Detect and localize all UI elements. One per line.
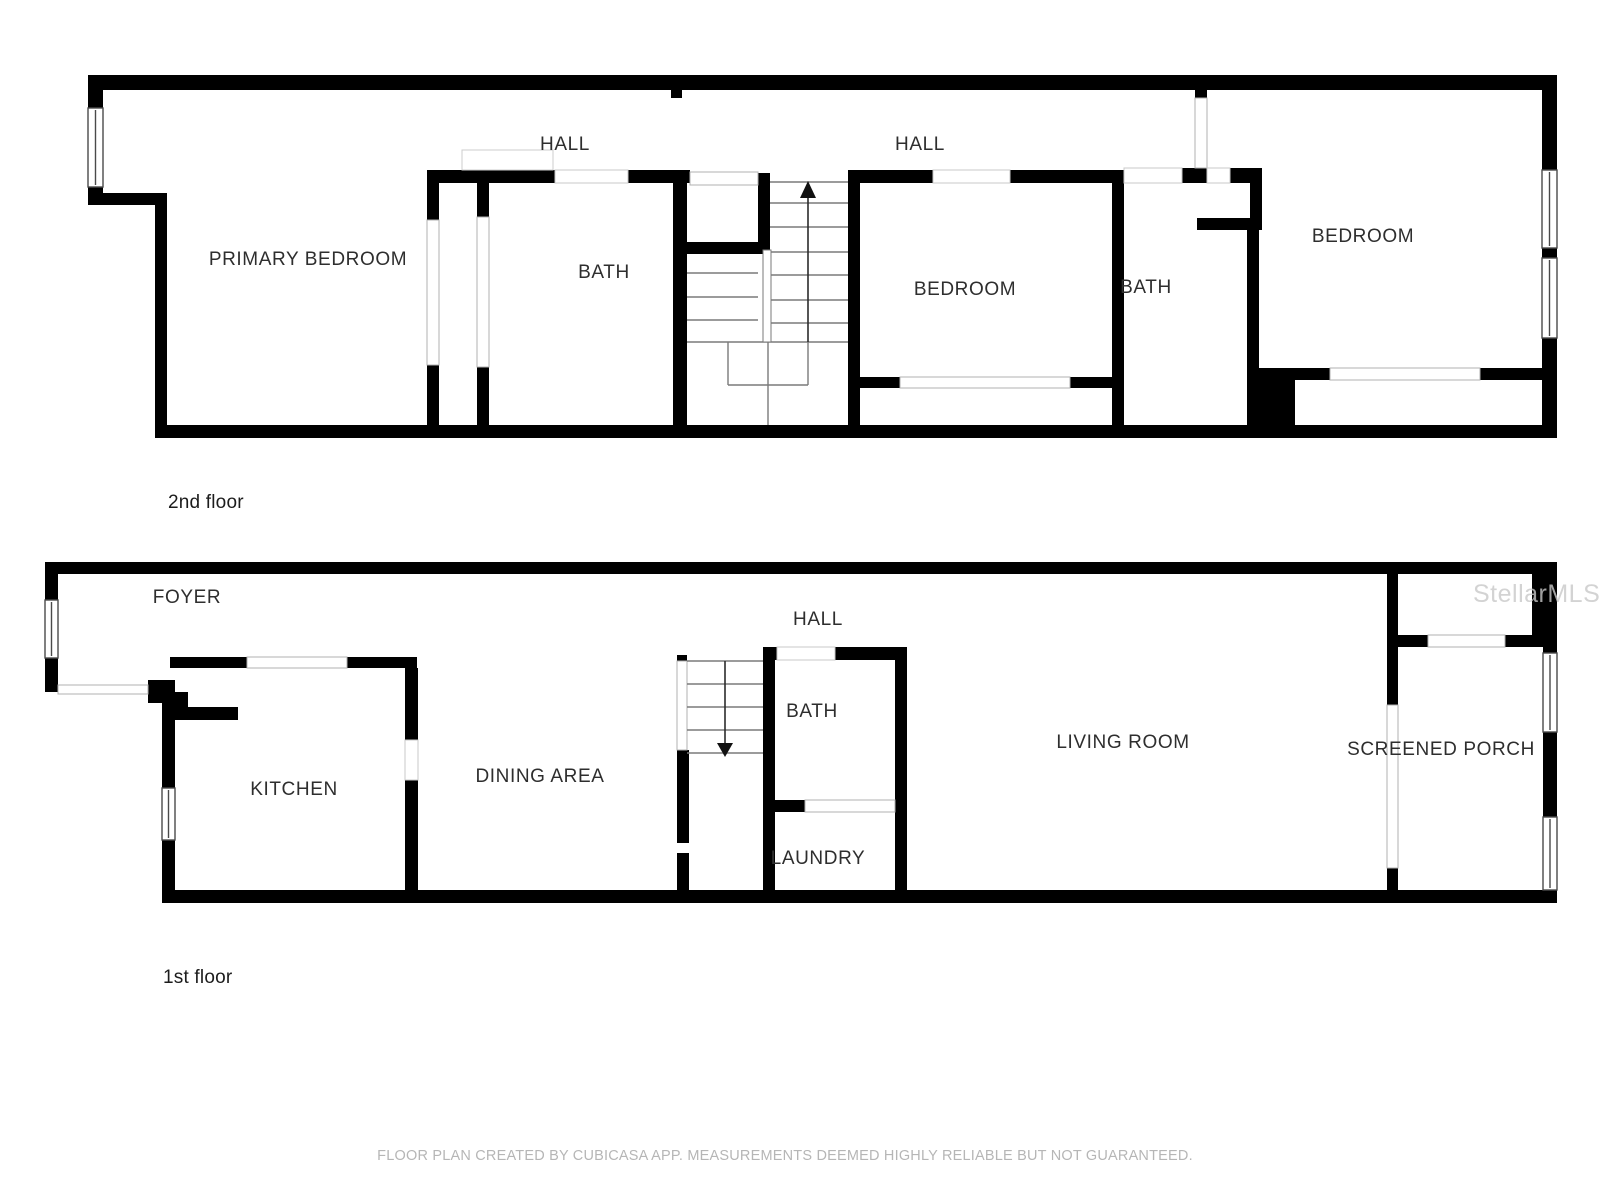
first-floor-openings [58, 635, 1505, 868]
first-floor-windows [45, 600, 1557, 890]
room-label-hall-2f-right: HALL [895, 134, 945, 156]
room-label-dining-area: DINING AREA [475, 766, 604, 788]
room-label-bath-2f-right: BATH [1120, 277, 1172, 299]
room-label-bath-2f-left: BATH [578, 262, 630, 284]
stellar-mls-watermark: StellarMLS [1473, 580, 1600, 609]
floor-plan-drawing [0, 0, 1600, 1200]
room-label-laundry: LAUNDRY [771, 848, 866, 870]
room-label-screened-porch: SCREENED PORCH [1347, 739, 1535, 761]
room-label-primary-bedroom: PRIMARY BEDROOM [209, 249, 407, 271]
room-label-hall-2f-left: HALL [540, 134, 590, 156]
stairs-up-arrow-icon [800, 181, 816, 342]
second-floor-windows [88, 108, 1557, 338]
room-label-bath-1f: BATH [786, 701, 838, 723]
floor-title-1st: 1st floor [163, 967, 232, 989]
disclaimer-text: FLOOR PLAN CREATED BY CUBICASA APP. MEAS… [0, 1148, 1570, 1164]
floor-plan-canvas: PRIMARY BEDROOM HALL BATH HALL BEDROOM B… [0, 0, 1600, 1200]
room-label-living-room: LIVING ROOM [1056, 732, 1189, 754]
room-label-bedroom-middle: BEDROOM [914, 279, 1016, 301]
room-label-bedroom-right: BEDROOM [1312, 226, 1414, 248]
floor-title-2nd: 2nd floor [168, 492, 244, 514]
room-label-hall-1f: HALL [793, 609, 843, 631]
stairs-down-arrow-icon [717, 661, 733, 757]
room-label-kitchen: KITCHEN [250, 779, 338, 801]
room-label-foyer: FOYER [153, 587, 221, 609]
